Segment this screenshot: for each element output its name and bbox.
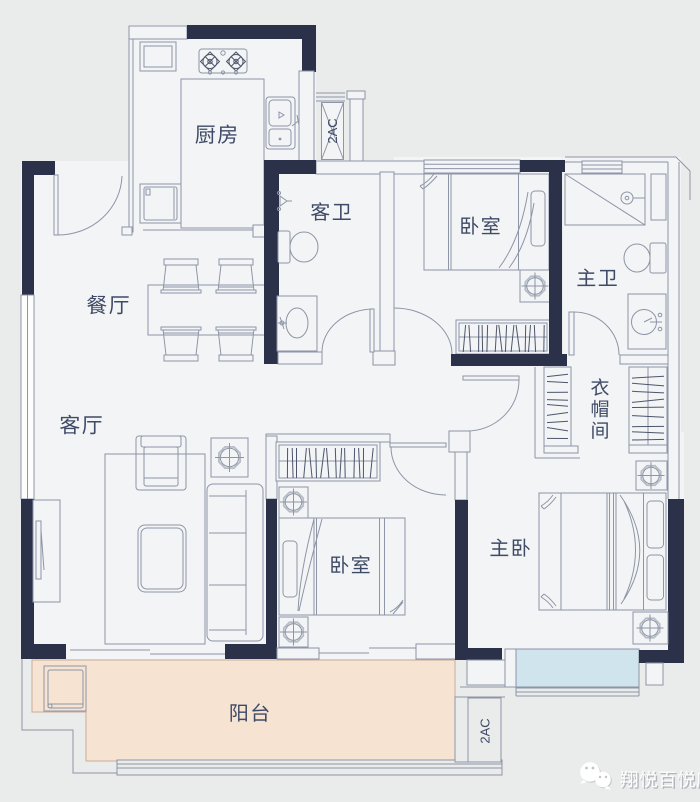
svg-text:2AC: 2AC (478, 718, 493, 743)
svg-text:2AC: 2AC (325, 118, 340, 143)
